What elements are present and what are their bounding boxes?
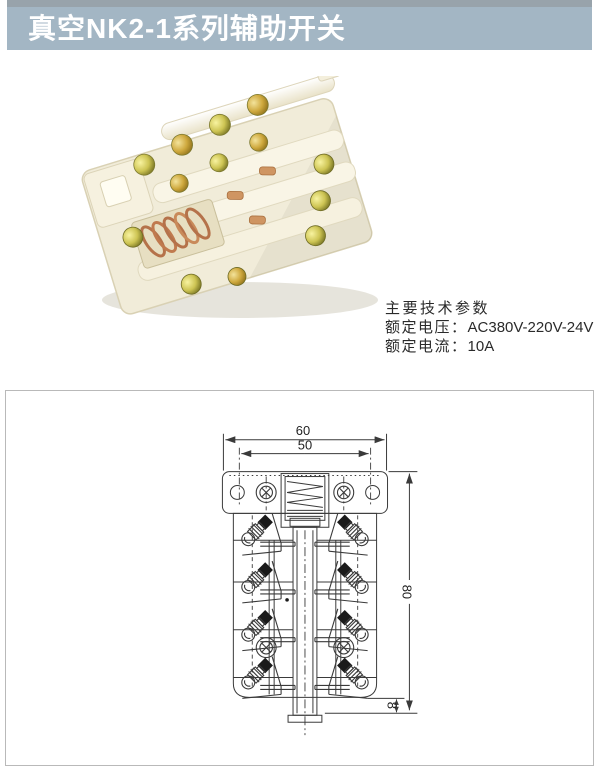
mounting-hole xyxy=(230,485,244,499)
spring-housing xyxy=(281,474,329,528)
body-dot xyxy=(285,598,289,602)
header-bar: 真空NK2-1系列辅助开关 xyxy=(7,7,592,50)
dim-label-50: 50 xyxy=(298,438,312,453)
actuator-shaft xyxy=(288,527,322,722)
dim-label-80: 80 xyxy=(399,585,414,599)
drawing-panel: 60 50 80 8 xyxy=(5,390,594,766)
photo-switch-body-group xyxy=(71,76,380,320)
spec-row-current: 额定电流：10A xyxy=(385,337,593,356)
spec-value: AC380V-220V-24V xyxy=(468,319,594,336)
terminals-left xyxy=(238,513,295,698)
dim-8 xyxy=(325,698,418,713)
spec-label: 额定电压： xyxy=(385,319,468,336)
terminals-right xyxy=(315,513,372,698)
catalog-page: 真空NK2-1系列辅助开关 xyxy=(0,0,600,774)
dim-label-8: 8 xyxy=(385,702,400,709)
page-title: 真空NK2-1系列辅助开关 xyxy=(7,7,346,50)
spring-zigzag xyxy=(287,482,323,508)
terminal xyxy=(238,513,295,555)
dimension-drawing: 60 50 80 8 xyxy=(6,391,593,765)
product-photo xyxy=(68,76,380,332)
terminal xyxy=(315,513,372,555)
tech-specs: 主要技术参数 额定电压：AC380V-220V-24V 额定电流：10A xyxy=(385,299,593,356)
specs-heading: 主要技术参数 xyxy=(385,299,593,318)
centerlines xyxy=(239,448,370,735)
spec-label: 额定电流： xyxy=(385,338,468,355)
spec-row-voltage: 额定电压：AC380V-220V-24V xyxy=(385,318,593,337)
spec-value: 10A xyxy=(468,338,495,355)
mounting-plate xyxy=(222,472,387,514)
mounting-hole xyxy=(366,485,380,499)
header: 真空NK2-1系列辅助开关 xyxy=(7,0,592,50)
dim-label-60: 60 xyxy=(296,423,310,438)
header-top-strip xyxy=(7,0,592,7)
